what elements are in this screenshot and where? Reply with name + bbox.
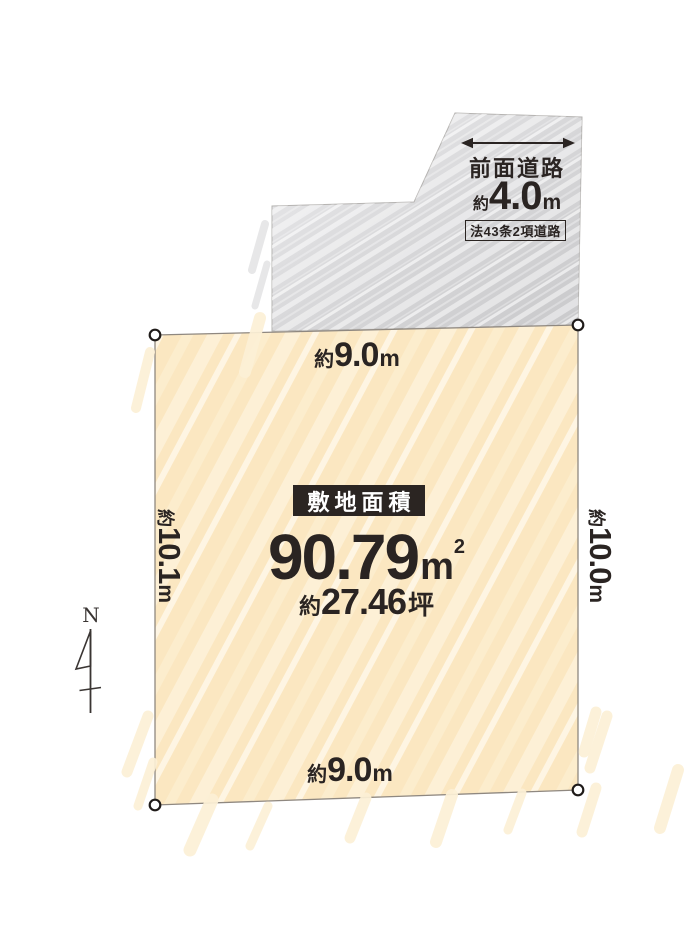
site-area-tsubo-unit: 坪 bbox=[408, 585, 434, 622]
dimension-bottom-unit: m bbox=[372, 760, 392, 787]
dimension-top-approx: 約 bbox=[314, 343, 334, 372]
road-width-label: 約4.0m bbox=[437, 174, 597, 218]
dimension-top-unit: m bbox=[379, 345, 399, 372]
dimension-bottom-approx: 約 bbox=[307, 758, 327, 787]
dimension-right-unit: m bbox=[584, 584, 608, 603]
dimension-right-approx: 約 bbox=[584, 509, 610, 527]
road-width-approx: 約 bbox=[473, 190, 489, 214]
dimension-bottom: 約9.0m bbox=[270, 751, 430, 791]
site-area-tsubo: 約27.46坪 bbox=[155, 581, 578, 621]
road-width-unit: m bbox=[542, 191, 561, 215]
site-area-tsubo-value: 27.46 bbox=[321, 581, 406, 623]
site-area-sqm-sup: 2 bbox=[454, 536, 465, 559]
compass-icon bbox=[76, 629, 101, 713]
dimension-right-value: 10.0 bbox=[582, 527, 618, 583]
road-decor-strokes bbox=[252, 224, 267, 306]
land-plot-diagram: N 前面道路 約4.0m 法43条2項道路 約9.0m 約9.0m 約10.1m… bbox=[0, 0, 700, 940]
site-area-badge: 敷地面積 bbox=[293, 485, 425, 516]
site-area-tsubo-approx: 約 bbox=[299, 589, 321, 621]
corner-marker bbox=[573, 785, 584, 796]
site-area-sqm: 90.79m2 bbox=[155, 520, 578, 586]
dimension-top: 約9.0m bbox=[277, 336, 437, 376]
dimension-right: 約10.0m bbox=[582, 491, 618, 621]
dimension-top-value: 9.0 bbox=[334, 336, 378, 375]
road-classification-box: 法43条2項道路 bbox=[465, 220, 566, 241]
corner-marker bbox=[150, 800, 161, 811]
dimension-bottom-value: 9.0 bbox=[327, 751, 371, 790]
corner-marker bbox=[573, 320, 584, 331]
road-width-value: 4.0 bbox=[489, 174, 542, 219]
compass-north-label: N bbox=[79, 603, 103, 627]
diagram-graphics bbox=[0, 0, 700, 940]
corner-marker bbox=[150, 330, 161, 341]
